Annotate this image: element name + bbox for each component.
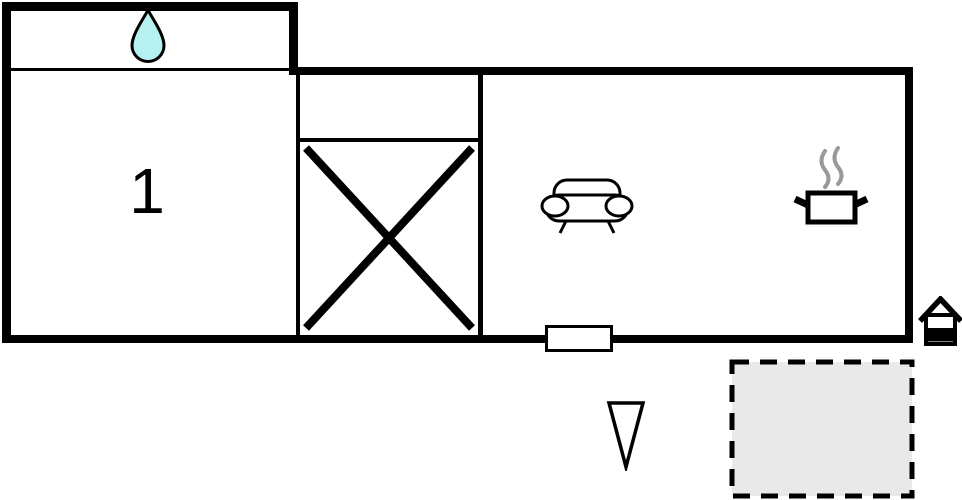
steam-line [822,151,829,187]
sofa-icon [539,175,635,235]
entrance-pointer-icon [605,399,647,471]
wall-bathroom-right [289,2,298,75]
cooking-pot-icon [786,145,876,227]
window-marker [545,325,613,352]
terrace-area [729,359,915,499]
x-cross-marker [300,140,478,336]
divider-bathroom-bedroom [11,68,289,71]
wall-main-top [289,67,913,75]
wall-middle-right [478,75,483,335]
wall-right [905,67,913,343]
water-drop-shape [132,10,164,62]
wall-left [2,2,11,343]
floor-plan: 1 [0,0,962,500]
terrace-rect [732,362,912,496]
steam-line [835,148,842,184]
water-drop-icon [128,8,168,63]
room-number-label: 1 [116,158,178,224]
grill-house-icon [918,296,962,348]
wall-bottom [2,335,913,343]
